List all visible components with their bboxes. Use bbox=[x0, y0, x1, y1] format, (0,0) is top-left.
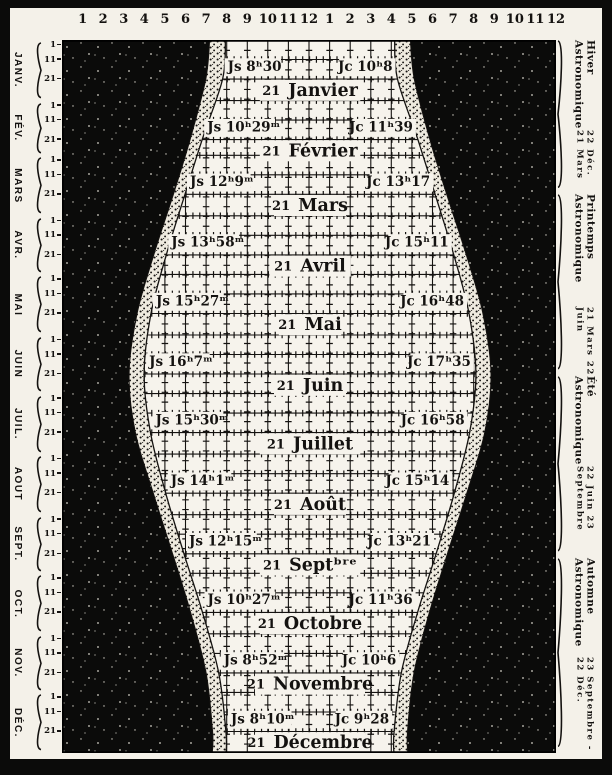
season-text: Automne Astronomique23 Septembre - 22 Dé… bbox=[567, 558, 602, 753]
twilight-duration-label: Jc 10ʰ8 bbox=[337, 59, 393, 75]
season-name: Printemps Astronomique bbox=[573, 194, 597, 305]
month-abbr-label: MARS bbox=[12, 168, 23, 203]
month-name-label: 21Août bbox=[274, 494, 346, 514]
season-text: Hiver Astronomique22 Déc. 21 Mars bbox=[567, 40, 602, 194]
day-tick-label: 1 bbox=[50, 635, 61, 643]
month-axis-block: DÉC.11121 bbox=[10, 692, 62, 753]
day-tick-label: 21 bbox=[44, 251, 61, 259]
season-block: Automne Astronomique23 Septembre - 22 Dé… bbox=[556, 558, 602, 753]
day-tick-label: 11 bbox=[44, 708, 61, 716]
day-tick-label: 1 bbox=[50, 693, 61, 701]
day-tick-label: 21 bbox=[44, 136, 61, 144]
brace-icon bbox=[32, 337, 44, 392]
hour-tick-label: 5 bbox=[156, 12, 174, 27]
day-tick-label: 21 bbox=[44, 370, 61, 378]
month-name-label: 21Mars bbox=[272, 196, 348, 216]
twilight-duration-label: Jc 11ʰ39 bbox=[348, 119, 413, 135]
twilight-duration-label: Jc 15ʰ14 bbox=[384, 473, 449, 489]
brace-icon bbox=[32, 157, 44, 214]
twilight-duration-label: Jc 9ʰ28 bbox=[334, 711, 390, 727]
day-tick-label: 11 bbox=[44, 649, 61, 657]
hour-tick-label: 11 bbox=[279, 12, 297, 27]
hour-tick-label: 12 bbox=[547, 12, 565, 27]
month-abbr-label: SEPT. bbox=[12, 526, 23, 561]
month-abbr-label: MAI bbox=[12, 293, 23, 316]
hour-tick-label: 8 bbox=[218, 12, 236, 27]
month-axis-block: JUIN11121 bbox=[10, 335, 62, 394]
hour-tick-label: 7 bbox=[444, 12, 462, 27]
month-abbr-label: NOV. bbox=[12, 648, 23, 678]
brace-icon bbox=[32, 396, 44, 453]
sunrise-duration-label: Js 12ʰ15ᵐ bbox=[188, 534, 262, 550]
hour-tick-label: 5 bbox=[403, 12, 421, 27]
sunrise-duration-label: Js 16ʰ7ᵐ bbox=[148, 354, 213, 370]
sunrise-duration-label: Js 14ʰ1ᵐ bbox=[170, 473, 235, 489]
hour-axis: 123456789101112123456789101112 bbox=[0, 12, 612, 38]
month-name-label: 21Juillet bbox=[267, 434, 353, 454]
brace-icon bbox=[32, 694, 44, 751]
day-tick-label: 11 bbox=[44, 470, 61, 478]
sunrise-duration-label: Js 10ʰ27ᵐ bbox=[207, 592, 281, 608]
month-axis-block: AOUT11121 bbox=[10, 454, 62, 515]
season-name: Automne Astronomique bbox=[573, 558, 597, 657]
day-tick-label: 11 bbox=[44, 530, 61, 538]
month-axis-block: SEPT.11121 bbox=[10, 515, 62, 574]
hour-tick-label: 10 bbox=[506, 12, 524, 27]
month-name-label: 21Mai bbox=[278, 315, 342, 335]
brace-icon bbox=[32, 517, 44, 572]
month-name-label: 21Octobre bbox=[258, 614, 362, 634]
brace-icon bbox=[556, 194, 567, 370]
day-tick-label: 1 bbox=[50, 516, 61, 524]
month-axis-block: JANV.11121 bbox=[10, 40, 62, 101]
season-margin: Hiver Astronomique22 Déc. 21 MarsPrintem… bbox=[556, 40, 602, 753]
month-abbr-label: DÉC. bbox=[12, 708, 23, 738]
season-dates: 22 Juin 23 Septembre bbox=[575, 466, 595, 558]
season-dates: 23 Septembre - 22 Déc. bbox=[575, 657, 595, 753]
hour-tick-label: 2 bbox=[341, 12, 359, 27]
day-tick-label: 1 bbox=[50, 275, 61, 283]
month-abbr-label: JUIL. bbox=[12, 408, 23, 440]
day-tick-label: 1 bbox=[50, 395, 61, 403]
brace-icon bbox=[556, 376, 567, 552]
sunrise-duration-label: Js 8ʰ10ᵐ bbox=[230, 711, 295, 727]
brace-icon bbox=[32, 575, 44, 632]
month-axis: JANV.11121FÉV.11121MARS11121AVR.11121MAI… bbox=[10, 40, 62, 753]
twilight-duration-label: Jc 17ʰ35 bbox=[406, 354, 471, 370]
day-tick-label: 21 bbox=[44, 669, 61, 677]
day-tick-label: 11 bbox=[44, 116, 61, 124]
season-dates: 22 Déc. 21 Mars bbox=[575, 130, 595, 194]
twilight-duration-label: Jc 13ʰ21 bbox=[366, 534, 431, 550]
day-tick-label: 21 bbox=[44, 75, 61, 83]
day-tick-label: 21 bbox=[44, 608, 61, 616]
hour-tick-label: 1 bbox=[74, 12, 92, 27]
sunrise-duration-label: Js 13ʰ58ᵐ bbox=[170, 235, 244, 251]
day-tick-label: 11 bbox=[44, 171, 61, 179]
twilight-duration-label: Jc 11ʰ36 bbox=[348, 592, 413, 608]
day-tick-label: 21 bbox=[44, 727, 61, 735]
twilight-duration-label: Jc 10ʰ6 bbox=[341, 653, 397, 669]
day-tick-label: 21 bbox=[44, 489, 61, 497]
day-tick-label: 1 bbox=[50, 455, 61, 463]
season-name: Été Astronomique bbox=[573, 376, 597, 465]
month-axis-block: MARS11121 bbox=[10, 155, 62, 216]
hour-tick-label: 4 bbox=[382, 12, 400, 27]
hour-tick-label: 6 bbox=[177, 12, 195, 27]
month-abbr-label: AOUT bbox=[12, 467, 23, 501]
brace-icon bbox=[32, 276, 44, 333]
hour-tick-label: 2 bbox=[94, 12, 112, 27]
season-text: Printemps Astronomique21 Mars 22 Juin bbox=[567, 194, 602, 376]
season-text: Été Astronomique22 Juin 23 Septembre bbox=[567, 376, 602, 558]
season-name: Hiver Astronomique bbox=[573, 40, 597, 129]
twilight-duration-label: Jc 15ʰ11 bbox=[384, 235, 449, 251]
sunrise-duration-label: Js 10ʰ29ᵐ bbox=[206, 119, 280, 135]
brace-icon bbox=[32, 456, 44, 513]
hour-tick-label: 3 bbox=[115, 12, 133, 27]
month-abbr-label: FÉV. bbox=[12, 114, 23, 141]
almanac-daylight-diagram: 123456789101112123456789101112 JANV.1112… bbox=[0, 0, 612, 775]
day-tick-label: 11 bbox=[44, 56, 61, 64]
hour-tick-label: 3 bbox=[362, 12, 380, 27]
day-tick-label: 11 bbox=[44, 290, 61, 298]
hour-tick-label: 10 bbox=[259, 12, 277, 27]
season-block: Printemps Astronomique21 Mars 22 Juin bbox=[556, 194, 602, 376]
twilight-duration-label: Jc 16ʰ48 bbox=[399, 293, 464, 309]
day-tick-label: 21 bbox=[44, 550, 61, 558]
day-tick-label: 1 bbox=[50, 102, 61, 110]
month-axis-block: OCT.11121 bbox=[10, 573, 62, 634]
twilight-duration-label: Jc 13ʰ17 bbox=[365, 174, 430, 190]
day-tick-label: 11 bbox=[44, 409, 61, 417]
month-abbr-label: OCT. bbox=[12, 589, 23, 618]
month-name-label: 21Février bbox=[262, 141, 358, 161]
brace-icon bbox=[32, 103, 44, 154]
sunrise-duration-label: Js 15ʰ27ᵐ bbox=[155, 293, 229, 309]
hour-tick-label: 6 bbox=[424, 12, 442, 27]
brace-icon bbox=[32, 218, 44, 273]
brace-icon bbox=[32, 42, 44, 99]
month-name-label: 21Avril bbox=[274, 256, 346, 276]
day-tick-label: 21 bbox=[44, 190, 61, 198]
month-axis-block: JUIL.11121 bbox=[10, 394, 62, 455]
hour-tick-label: 11 bbox=[526, 12, 544, 27]
sunrise-duration-label: Js 12ʰ9ᵐ bbox=[189, 174, 254, 190]
sunrise-duration-label: Js 8ʰ30 bbox=[227, 59, 282, 75]
day-tick-label: 1 bbox=[50, 156, 61, 164]
month-abbr-label: JANV. bbox=[12, 52, 23, 88]
day-tick-label: 11 bbox=[44, 351, 61, 359]
hour-tick-label: 1 bbox=[321, 12, 339, 27]
daylight-chart-svg: Js 8ʰ30Jc 10ʰ821JanvierJs 10ʰ29ᵐJc 11ʰ39… bbox=[62, 40, 556, 753]
season-block: Été Astronomique22 Juin 23 Septembre bbox=[556, 376, 602, 558]
day-tick-label: 21 bbox=[44, 309, 61, 317]
brace-icon bbox=[556, 558, 567, 747]
day-tick-label: 1 bbox=[50, 41, 61, 49]
hour-tick-label: 8 bbox=[465, 12, 483, 27]
day-tick-label: 11 bbox=[44, 231, 61, 239]
brace-icon bbox=[556, 40, 567, 188]
hour-tick-label: 12 bbox=[300, 12, 318, 27]
month-abbr-label: AVR. bbox=[12, 231, 23, 260]
month-name-label: 21Janvier bbox=[262, 80, 358, 100]
month-axis-block: MAI11121 bbox=[10, 274, 62, 335]
day-tick-label: 21 bbox=[44, 429, 61, 437]
day-tick-label: 11 bbox=[44, 589, 61, 597]
month-name-label: 21Juin bbox=[277, 375, 344, 395]
month-abbr-label: JUIN bbox=[12, 350, 23, 379]
sunrise-duration-label: Js 15ʰ30ᵐ bbox=[155, 412, 229, 428]
day-tick-label: 1 bbox=[50, 217, 61, 225]
season-dates: 21 Mars 22 Juin bbox=[575, 307, 595, 376]
hour-tick-label: 9 bbox=[485, 12, 503, 27]
month-name-label: 21Septᵇʳᵉ bbox=[263, 555, 357, 575]
hour-tick-label: 7 bbox=[197, 12, 215, 27]
month-axis-block: AVR.11121 bbox=[10, 216, 62, 275]
sunrise-duration-label: Js 8ʰ52ᵐ bbox=[223, 653, 288, 669]
day-tick-label: 1 bbox=[50, 336, 61, 344]
twilight-duration-label: Jc 16ʰ58 bbox=[400, 412, 465, 428]
season-block: Hiver Astronomique22 Déc. 21 Mars bbox=[556, 40, 602, 194]
brace-icon bbox=[32, 636, 44, 691]
month-axis-block: FÉV.11121 bbox=[10, 101, 62, 156]
month-axis-block: NOV.11121 bbox=[10, 634, 62, 693]
hour-tick-label: 4 bbox=[135, 12, 153, 27]
day-tick-label: 1 bbox=[50, 574, 61, 582]
hour-tick-label: 9 bbox=[238, 12, 256, 27]
daylight-chart: Js 8ʰ30Jc 10ʰ821JanvierJs 10ʰ29ᵐJc 11ʰ39… bbox=[62, 40, 556, 753]
